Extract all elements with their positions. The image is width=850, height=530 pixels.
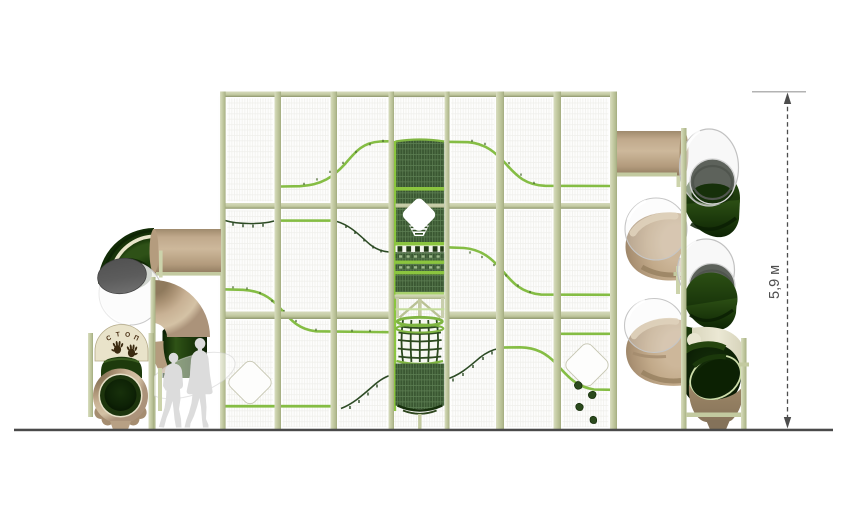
svg-text:5,9 м: 5,9 м (767, 265, 783, 299)
svg-text:О: О (124, 331, 130, 339)
